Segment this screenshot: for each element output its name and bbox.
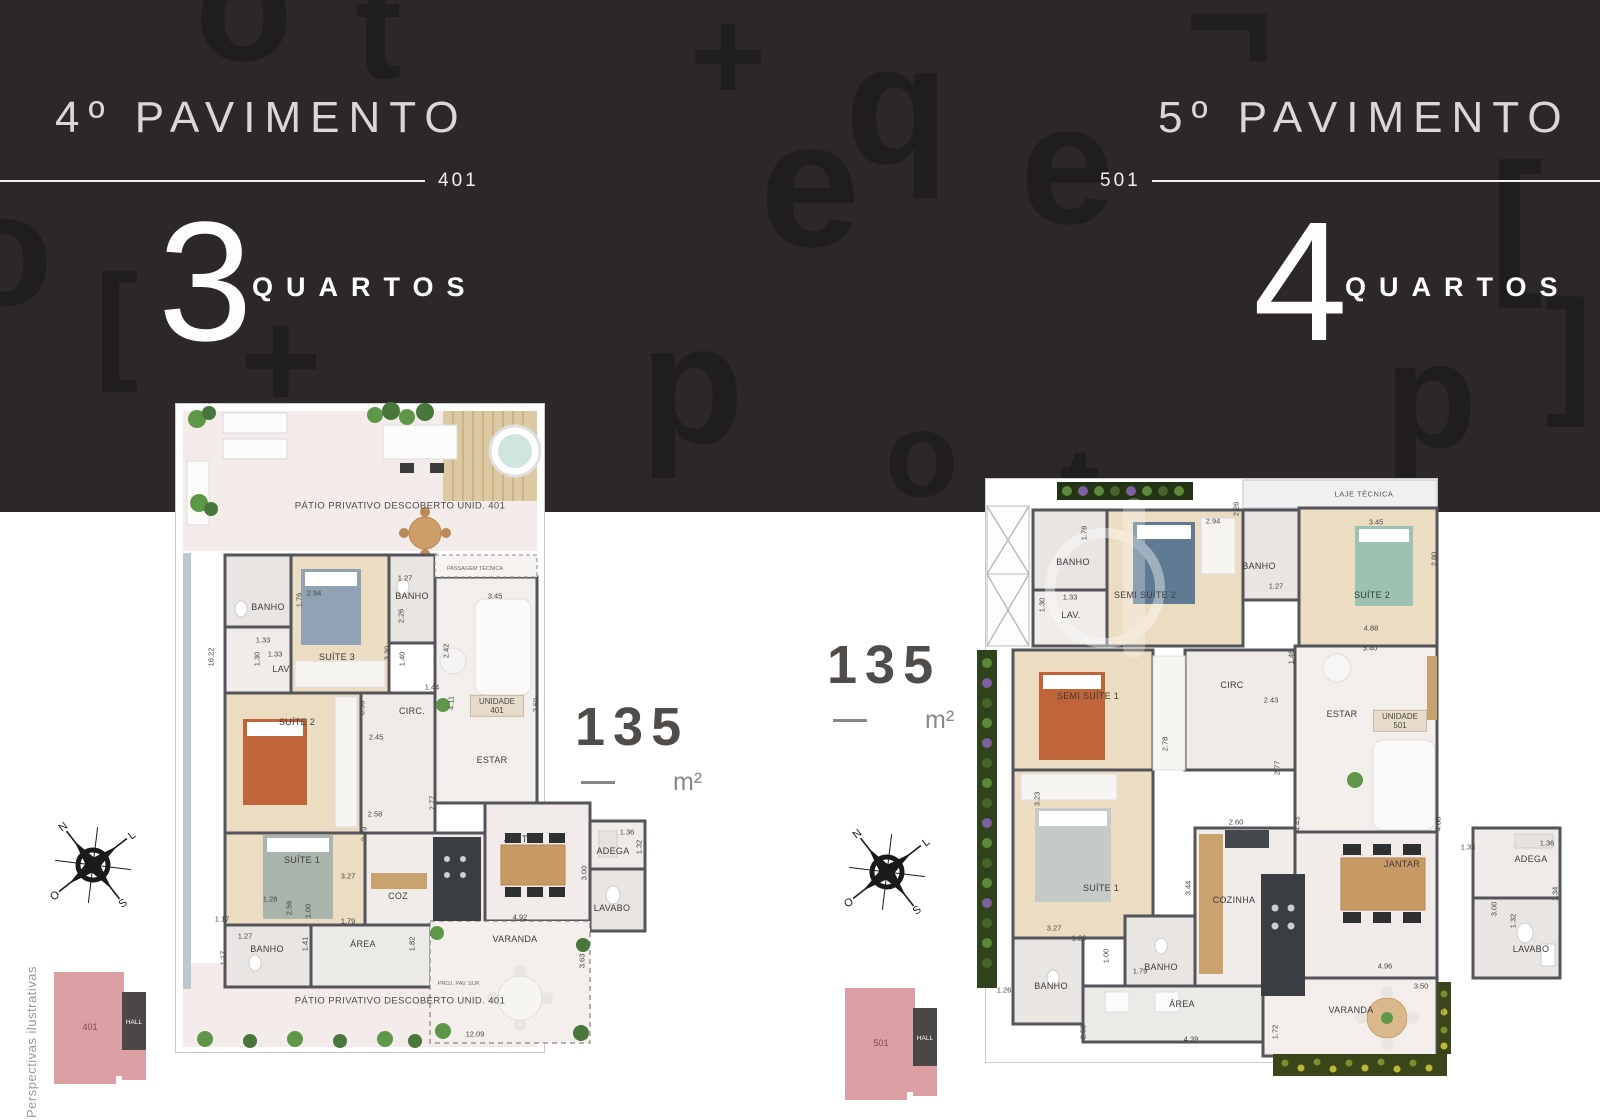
divider-line-left bbox=[0, 180, 425, 182]
compass-rose-right: N S O L bbox=[832, 817, 942, 932]
dimension-label: 1.36 bbox=[1540, 839, 1555, 848]
room-label: LAVABO bbox=[594, 903, 630, 913]
dimension-label: 1.27 bbox=[238, 932, 253, 941]
dimension-label: 2.80 bbox=[1430, 552, 1439, 567]
room-label: ESTAR bbox=[1327, 709, 1358, 719]
dimension-label: 3.23 bbox=[1033, 792, 1042, 807]
area-value: 135 bbox=[827, 638, 987, 692]
dimension-label: 1.17 bbox=[215, 915, 230, 924]
dimension-label: 1.34 bbox=[1551, 887, 1560, 902]
dimension-label: 1.27 bbox=[398, 574, 413, 583]
dimension-label: 2.45 bbox=[369, 733, 384, 742]
dimension-label: 1.33 bbox=[268, 650, 283, 659]
dimension-label: 2.78 bbox=[1161, 737, 1170, 752]
floor-title-5: 5º PAVIMENTO bbox=[1158, 93, 1571, 143]
dimension-label: 2.60 bbox=[1229, 818, 1244, 827]
dimension-label: 1.44 bbox=[425, 683, 440, 692]
decor-glyph: t bbox=[355, 0, 402, 100]
dimension-label: 4.39 bbox=[1184, 1035, 1199, 1044]
unit-number-401: 401 bbox=[438, 170, 479, 192]
dimension-label: 1.72 bbox=[1271, 1025, 1280, 1040]
room-label: SEMI SUÍTE 1 bbox=[1057, 691, 1119, 701]
dimension-label: 1.79 bbox=[341, 917, 356, 926]
dimension-label: 2.58 bbox=[1079, 1025, 1088, 1040]
dimension-label: 2.29 bbox=[360, 827, 369, 842]
note-label: PASSAGEM TÉCNICA bbox=[447, 566, 503, 572]
keyplan-501: HALL 501 bbox=[843, 984, 943, 1111]
room-label: LAVABO bbox=[1513, 944, 1549, 954]
dimension-label: 3.27 bbox=[341, 872, 356, 881]
dimension-label: 1.30 bbox=[1038, 598, 1047, 613]
dimension-label: 1.76 bbox=[1080, 526, 1089, 541]
area-unit: m² bbox=[673, 768, 702, 797]
dimension-label: 1.33 bbox=[1461, 843, 1476, 852]
dimension-label: 2.77 bbox=[428, 796, 437, 811]
dimension-label: 1.79 bbox=[1133, 967, 1148, 976]
dimension-label: 16.22 bbox=[207, 648, 216, 667]
room-label: CIRC bbox=[1220, 680, 1243, 690]
note-label: PROJ. PAV. SUP. bbox=[438, 981, 481, 987]
room-label: SEMI SUÍTE 2 bbox=[1114, 590, 1176, 600]
room-label: JANTAR bbox=[504, 834, 540, 844]
room-label: ADEGA bbox=[596, 846, 629, 856]
decor-glyph: p bbox=[640, 300, 744, 470]
room-label: SUÍTE 2 bbox=[1354, 590, 1390, 600]
dimension-label: 1.17 bbox=[219, 951, 228, 966]
bedroom-count-4: 4 bbox=[1253, 197, 1348, 367]
dimension-label: 1.53 bbox=[1437, 1005, 1446, 1020]
dimension-label: 2.26 bbox=[397, 609, 406, 624]
hall-label: HALL bbox=[126, 1019, 143, 1026]
room-label: SUÍTE 2 bbox=[279, 717, 315, 727]
dimension-label: 3.50 bbox=[1414, 982, 1429, 991]
room-label: COZINHA bbox=[1213, 895, 1256, 905]
dimension-label: 1.32 bbox=[1509, 914, 1518, 929]
patio-label: PÁTIO PRIVATIVO DESCOBERTO UNID. 401 bbox=[295, 996, 506, 1007]
dimension-label: 2.94 bbox=[1206, 517, 1221, 526]
decor-glyph: e bbox=[760, 95, 860, 275]
quartos-label-left: QUARTOS bbox=[252, 272, 478, 303]
dimension-label: 3.45 bbox=[1369, 518, 1384, 527]
dimension-label: 1.33 bbox=[1063, 593, 1078, 602]
floorplan-unit-501: LAJE TÉCNICABANHOLAV.SEMI SUÍTE 2BANHOSU… bbox=[975, 478, 1560, 1080]
dimension-label: 0.96 bbox=[358, 701, 367, 716]
divider-line-right bbox=[1152, 180, 1600, 182]
dimension-label: 1.26 bbox=[1072, 934, 1087, 943]
dimension-label: 2.43 bbox=[1264, 696, 1279, 705]
strip-label: LAJE TÉCNICA bbox=[1335, 490, 1394, 499]
compass-l: L bbox=[126, 829, 138, 842]
decor-glyph: q bbox=[845, 20, 949, 190]
area-value: 135 bbox=[575, 700, 735, 754]
dimension-label: 1.40 bbox=[398, 652, 407, 667]
room-label: SUÍTE 1 bbox=[284, 855, 320, 865]
decor-glyph: + bbox=[690, 0, 766, 120]
floorplan-501-labels: LAJE TÉCNICABANHOLAV.SEMI SUÍTE 2BANHOSU… bbox=[975, 478, 1560, 1080]
dimension-label: 1.30 bbox=[253, 652, 262, 667]
area-dash bbox=[833, 719, 867, 722]
unit-number-501: 501 bbox=[1100, 170, 1141, 192]
dimension-label: 1.82 bbox=[408, 937, 417, 952]
dimension-label: 4.43 bbox=[1293, 817, 1302, 832]
dimension-label: 2.94 bbox=[307, 589, 322, 598]
dimension-label: 1.00 bbox=[304, 904, 313, 919]
decor-glyph: o bbox=[0, 170, 53, 330]
dimension-label: 1.36 bbox=[620, 828, 635, 837]
dimension-label: 3.40 bbox=[1363, 644, 1378, 653]
dimension-label: 1.46 bbox=[1287, 650, 1296, 665]
dimension-label: 3.45 bbox=[488, 592, 503, 601]
room-label: SUÍTE 3 bbox=[319, 652, 355, 662]
dimension-label: 1.33 bbox=[256, 636, 271, 645]
dimension-label: 4.96 bbox=[1378, 962, 1393, 971]
room-label: JANTAR bbox=[1384, 859, 1420, 869]
room-label: ÁREA bbox=[1169, 999, 1195, 1009]
quartos-label-right: QUARTOS bbox=[1345, 272, 1571, 303]
dimension-label: 1.28 bbox=[263, 895, 278, 904]
room-label: BANHO bbox=[1034, 981, 1068, 991]
compass-rose-left: N S O L bbox=[38, 810, 148, 925]
decor-glyph: [ bbox=[95, 255, 138, 385]
keyplan-unit-number: 401 bbox=[82, 1022, 97, 1032]
dimension-label: 1.00 bbox=[1102, 949, 1111, 964]
compass-l: L bbox=[920, 836, 932, 849]
dimension-label: 2.58 bbox=[1229, 836, 1244, 845]
dimension-label: 2.56 bbox=[285, 901, 294, 916]
dimension-label: 4.11 bbox=[447, 696, 456, 710]
dimension-label: 1.76 bbox=[295, 593, 304, 608]
room-label: BANHO bbox=[251, 602, 285, 612]
unit-tag: UNIDADE 501 bbox=[1373, 710, 1427, 732]
room-label: VARANDA bbox=[1329, 1005, 1374, 1015]
room-label: VARANDA bbox=[493, 934, 538, 944]
dimension-label: 3.27 bbox=[1047, 924, 1062, 933]
dimension-label: 1.32 bbox=[635, 840, 644, 855]
decor-glyph: p bbox=[1385, 320, 1477, 470]
bedroom-count-3: 3 bbox=[158, 197, 253, 367]
dimension-label: 1.27 bbox=[1269, 582, 1284, 591]
dimension-label: 4.88 bbox=[1434, 817, 1443, 832]
footnote-disclaimer: Perspectivas ilustrativas bbox=[24, 908, 39, 1118]
room-label: ÁREA bbox=[350, 939, 376, 949]
floor-title-4: 4º PAVIMENTO bbox=[55, 93, 468, 143]
dimension-label: 4.88 bbox=[1364, 624, 1379, 633]
dimension-label: 12.09 bbox=[466, 1030, 485, 1039]
room-label: ADEGA bbox=[1514, 854, 1547, 864]
room-label: LAV. bbox=[1061, 610, 1080, 620]
room-label: COZ bbox=[388, 891, 408, 901]
dimension-label: 2.77 bbox=[1273, 761, 1282, 776]
room-label: SUÍTE 1 bbox=[1083, 883, 1119, 893]
room-label: BANHO bbox=[250, 944, 284, 954]
patio-label: PÁTIO PRIVATIVO DESCOBERTO UNID. 401 bbox=[295, 501, 506, 512]
dimension-label: 2.58 bbox=[368, 810, 383, 819]
room-label: ESTAR bbox=[477, 755, 508, 765]
hall-label: HALL bbox=[917, 1035, 934, 1042]
decor-glyph: o bbox=[195, 0, 293, 85]
page: ot¬+qee[+o[pop]t 4º PAVIMENTO 401 3 QUAR… bbox=[0, 0, 1600, 1120]
compass-s: S bbox=[117, 897, 130, 911]
keyplan-401: HALL 401 bbox=[52, 968, 152, 1095]
room-label: BANHO bbox=[1144, 962, 1178, 972]
decor-glyph: o bbox=[885, 395, 958, 512]
room-label: BANHO bbox=[1242, 561, 1276, 571]
area-badge-501: 135 m² bbox=[827, 638, 987, 735]
dimension-label: 3.00 bbox=[1490, 902, 1499, 917]
decor-glyph: ¬ bbox=[1185, 0, 1273, 95]
unit-tag: UNIDADE 401 bbox=[470, 695, 524, 717]
dimension-label: 2.26 bbox=[1232, 502, 1241, 517]
dimension-label: 1.26 bbox=[997, 986, 1012, 995]
dimension-label: 2.42 bbox=[442, 644, 451, 659]
dimension-label: 4.92 bbox=[513, 913, 528, 922]
area-unit: m² bbox=[925, 706, 954, 735]
dimension-label: 3.00 bbox=[580, 866, 589, 881]
keyplan-unit-number: 501 bbox=[873, 1038, 888, 1048]
room-label: BANHO bbox=[395, 591, 429, 601]
room-label: BANHO bbox=[1056, 557, 1090, 567]
dimension-label: 3.30 bbox=[383, 646, 392, 661]
room-label: LAV. bbox=[272, 664, 291, 674]
dimension-label: 1.41 bbox=[301, 937, 310, 952]
dimension-label: 7.59 bbox=[532, 698, 541, 713]
dimension-label: 3.44 bbox=[1184, 881, 1193, 896]
dimension-label: 3.63 bbox=[578, 954, 587, 969]
decor-glyph: e bbox=[1020, 80, 1115, 250]
area-badge-401: 135 m² bbox=[575, 700, 735, 797]
compass-s: S bbox=[911, 904, 924, 918]
area-dash bbox=[581, 781, 615, 784]
room-label: CIRC. bbox=[399, 706, 425, 716]
